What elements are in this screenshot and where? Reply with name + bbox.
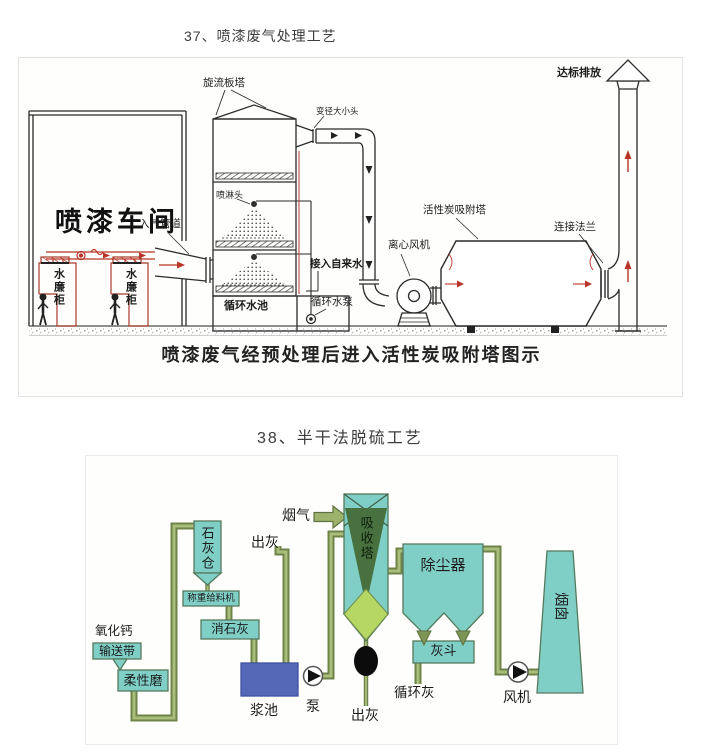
label-connecting-flange: 连接法兰 [554, 222, 596, 233]
exhaust-stack [607, 60, 649, 331]
label-conveyor: 输送带 [93, 645, 141, 658]
spray-tower [213, 90, 311, 314]
desulfurization-diagram-drawing [86, 456, 619, 746]
slurry-pool-box [241, 663, 298, 696]
label-centrifugal-fan: 离心风机 [388, 240, 430, 251]
discharge-valve [354, 646, 378, 676]
label-tap-water: 接入自来水 [310, 259, 363, 270]
label-circulating-pump: 循环水泵 [311, 297, 353, 308]
label-compliant-discharge: 达标排放 [557, 68, 601, 80]
label-chimney: 烟囱 [554, 592, 569, 624]
diagram-spray-paint-exhaust: 旋流板塔 变径大小头 达标排放 喷漆车间 入气管道 喷淋头 接入自来水 离心风机… [18, 57, 683, 397]
section1-title: 37、喷漆废气处理工艺 [184, 26, 337, 46]
label-calcium-oxide: 氧化钙 [95, 625, 133, 638]
label-carbon-tower: 活性炭吸附塔 [423, 205, 486, 216]
label-lime-silo: 石灰仓 [200, 526, 214, 571]
label-spray-head: 喷淋头 [216, 191, 243, 200]
label-reducer: 变径大小头 [316, 107, 359, 116]
label-water-curtain-1: 水廉柜 [52, 268, 64, 307]
label-slaked-lime: 消石灰 [201, 623, 259, 636]
draft-fan [508, 662, 528, 682]
transfer-duct [296, 116, 389, 306]
conveyor-funnel [113, 659, 127, 670]
slurry-pump [304, 667, 323, 686]
label-flue-gas: 烟气 [282, 508, 310, 523]
diagram1-caption: 喷漆废气经预处理后进入活性炭吸附塔图示 [19, 346, 684, 365]
diagram-semi-dry-desulfurization: 烟气 出灰 石灰仓 称重给料机 消石灰 氧化钙 输送带 柔性磨 浆池 泵 出灰 … [85, 455, 618, 745]
article-page: 37、喷漆废气处理工艺 [0, 0, 701, 756]
label-circulating-pool: 循环水池 [224, 301, 268, 313]
worker-figures [38, 294, 120, 325]
label-pump: 泵 [306, 699, 320, 714]
label-circulating-ash: 循环灰 [394, 686, 435, 700]
activated-carbon-tower [441, 218, 608, 333]
label-cyclone-plate-tower: 旋流板塔 [203, 78, 245, 89]
label-ash-out-bottom: 出灰 [351, 708, 379, 723]
label-absorption-tower: 吸收塔 [359, 516, 373, 561]
label-water-curtain-2: 水廉柜 [124, 268, 136, 307]
label-flexible-mill: 柔性磨 [118, 674, 168, 688]
label-weighing-feeder: 称重给料机 [183, 594, 239, 604]
flue-gas-arrow [314, 506, 347, 528]
label-slurry-pool: 浆池 [250, 703, 278, 718]
lime-silo-funnel [194, 573, 221, 585]
centrifugal-fan [397, 254, 441, 326]
label-fan: 风机 [503, 690, 531, 705]
label-ash-hopper: 灰斗 [413, 644, 474, 658]
label-ash-out-top: 出灰 [251, 535, 279, 550]
label-dust-collector: 除尘器 [403, 558, 483, 574]
inlet-duct [155, 234, 213, 283]
section2-title: 38、半干法脱硫工艺 [257, 424, 423, 448]
label-air-inlet-pipe: 入气管道 [139, 219, 181, 230]
